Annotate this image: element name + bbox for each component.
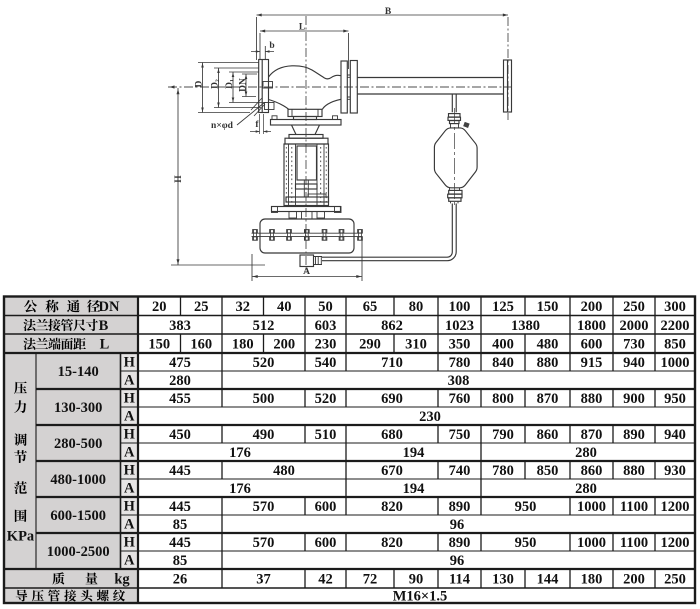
svg-text:150: 150: [537, 299, 559, 315]
svg-text:850: 850: [664, 337, 686, 353]
svg-text:950: 950: [515, 499, 537, 515]
svg-text:H: H: [124, 463, 136, 479]
svg-text:2000: 2000: [620, 318, 649, 334]
svg-text:n×φd: n×φd: [211, 121, 234, 131]
svg-text:A: A: [124, 445, 135, 461]
svg-text:A: A: [124, 373, 135, 389]
svg-text:1380: 1380: [511, 318, 540, 334]
svg-text:50: 50: [318, 299, 333, 315]
svg-text:862: 862: [381, 318, 403, 334]
svg-text:540: 540: [315, 355, 337, 371]
svg-text:15-140: 15-140: [58, 364, 99, 380]
svg-text:130-300: 130-300: [54, 400, 102, 416]
svg-text:100: 100: [449, 299, 471, 315]
svg-text:600: 600: [581, 337, 603, 353]
svg-text:850: 850: [537, 463, 559, 479]
svg-text:32: 32: [236, 299, 251, 315]
svg-text:65: 65: [363, 299, 378, 315]
svg-text:1200: 1200: [661, 499, 690, 515]
svg-text:500: 500: [253, 391, 275, 407]
svg-text:b: b: [269, 41, 274, 51]
svg-text:A: A: [124, 409, 135, 425]
svg-text:114: 114: [449, 572, 470, 588]
svg-text:A: A: [124, 517, 135, 533]
svg-text:280-500: 280-500: [54, 436, 102, 452]
svg-text:180: 180: [232, 337, 254, 353]
svg-text:455: 455: [169, 391, 191, 407]
svg-text:H: H: [174, 175, 184, 183]
svg-text:790: 790: [492, 427, 514, 443]
svg-text:950: 950: [664, 391, 686, 407]
svg-text:450: 450: [169, 427, 191, 443]
svg-text:H: H: [124, 391, 136, 407]
svg-text:144: 144: [537, 572, 559, 588]
svg-text:130: 130: [492, 572, 514, 588]
svg-text:445: 445: [169, 535, 191, 551]
svg-text:160: 160: [190, 337, 212, 353]
svg-text:280: 280: [575, 481, 597, 497]
svg-text:20: 20: [152, 299, 167, 315]
svg-text:870: 870: [581, 427, 603, 443]
svg-text:710: 710: [381, 355, 403, 371]
svg-text:85: 85: [173, 517, 188, 533]
svg-text:200: 200: [273, 337, 295, 353]
svg-text:1100: 1100: [620, 499, 648, 515]
svg-text:350: 350: [449, 337, 471, 353]
svg-text:kg: kg: [114, 572, 130, 588]
svg-text:230: 230: [315, 337, 337, 353]
svg-text:M16×1.5: M16×1.5: [393, 589, 448, 605]
svg-text:730: 730: [623, 337, 645, 353]
svg-text:680: 680: [381, 427, 403, 443]
svg-text:940: 940: [623, 355, 645, 371]
svg-text:445: 445: [169, 499, 191, 515]
svg-text:890: 890: [623, 427, 645, 443]
svg-text:37: 37: [256, 572, 271, 588]
svg-text:780: 780: [492, 463, 514, 479]
svg-text:740: 740: [449, 463, 471, 479]
svg-text:930: 930: [664, 463, 686, 479]
svg-text:880: 880: [537, 355, 559, 371]
svg-text:570: 570: [253, 535, 275, 551]
svg-text:DN: DN: [99, 299, 120, 315]
svg-text:1000: 1000: [661, 355, 690, 371]
svg-text:670: 670: [381, 463, 403, 479]
svg-text:80: 80: [409, 299, 424, 315]
svg-text:800: 800: [492, 391, 514, 407]
svg-text:A: A: [303, 267, 310, 277]
svg-text:290: 290: [359, 337, 381, 353]
svg-text:750: 750: [449, 427, 471, 443]
svg-text:1100: 1100: [620, 535, 648, 551]
svg-text:L: L: [100, 337, 110, 353]
svg-text:150: 150: [148, 337, 170, 353]
svg-text:90: 90: [409, 572, 424, 588]
svg-text:475: 475: [169, 355, 191, 371]
svg-text:25: 25: [194, 299, 209, 315]
svg-text:200: 200: [623, 572, 645, 588]
svg-text:H: H: [124, 499, 136, 515]
svg-text:880: 880: [623, 463, 645, 479]
svg-text:72: 72: [363, 572, 378, 588]
svg-text:A: A: [124, 481, 135, 497]
svg-text:B: B: [99, 318, 109, 334]
svg-text:890: 890: [449, 535, 471, 551]
svg-text:200: 200: [581, 299, 603, 315]
svg-text:H: H: [124, 535, 136, 551]
svg-text:900: 900: [623, 391, 645, 407]
svg-text:194: 194: [403, 445, 425, 461]
svg-text:600: 600: [315, 499, 337, 515]
svg-text:600: 600: [315, 535, 337, 551]
svg-text:603: 603: [315, 318, 337, 334]
svg-text:125: 125: [492, 299, 514, 315]
svg-text:383: 383: [169, 318, 191, 334]
svg-text:250: 250: [623, 299, 645, 315]
svg-text:950: 950: [515, 535, 537, 551]
svg-text:180: 180: [581, 572, 603, 588]
svg-text:840: 840: [492, 355, 514, 371]
svg-text:510: 510: [315, 427, 337, 443]
svg-text:230: 230: [419, 409, 441, 425]
svg-text:760: 760: [449, 391, 471, 407]
svg-text:520: 520: [315, 391, 337, 407]
svg-text:194: 194: [403, 481, 425, 497]
svg-text:1800: 1800: [577, 318, 606, 334]
svg-text:860: 860: [581, 463, 603, 479]
svg-text:890: 890: [449, 499, 471, 515]
svg-text:310: 310: [405, 337, 427, 353]
svg-text:96: 96: [450, 553, 465, 569]
svg-text:H: H: [124, 355, 136, 371]
svg-text:1000: 1000: [577, 499, 606, 515]
svg-text:600-1500: 600-1500: [50, 508, 106, 524]
svg-text:H: H: [124, 427, 136, 443]
svg-text:820: 820: [381, 535, 403, 551]
svg-text:96: 96: [450, 517, 465, 533]
svg-text:42: 42: [318, 572, 333, 588]
svg-text:300: 300: [664, 299, 686, 315]
svg-text:860: 860: [537, 427, 559, 443]
svg-text:176: 176: [229, 481, 251, 497]
svg-text:A: A: [124, 553, 135, 569]
svg-text:1023: 1023: [445, 318, 474, 334]
svg-text:176: 176: [229, 445, 251, 461]
svg-text:940: 940: [664, 427, 686, 443]
svg-text:880: 880: [581, 391, 603, 407]
svg-text:820: 820: [381, 499, 403, 515]
svg-text:512: 512: [253, 318, 275, 334]
svg-text:480-1000: 480-1000: [50, 472, 106, 488]
svg-text:915: 915: [581, 355, 603, 371]
svg-text:480: 480: [537, 337, 559, 353]
svg-text:250: 250: [664, 572, 686, 588]
svg-text:1000: 1000: [577, 535, 606, 551]
svg-text:490: 490: [253, 427, 275, 443]
svg-text:280: 280: [169, 373, 191, 389]
svg-text:1000-2500: 1000-2500: [47, 544, 110, 560]
svg-text:400: 400: [492, 337, 514, 353]
svg-text:26: 26: [173, 572, 188, 588]
svg-text:KPa: KPa: [7, 529, 35, 545]
svg-text:DN: DN: [239, 78, 249, 92]
svg-text:780: 780: [449, 355, 471, 371]
svg-text:40: 40: [277, 299, 292, 315]
svg-text:308: 308: [448, 373, 470, 389]
svg-text:85: 85: [173, 553, 188, 569]
svg-text:870: 870: [537, 391, 559, 407]
svg-text:L: L: [299, 23, 305, 33]
svg-text:690: 690: [381, 391, 403, 407]
svg-text:480: 480: [273, 463, 295, 479]
svg-text:445: 445: [169, 463, 191, 479]
svg-text:570: 570: [253, 499, 275, 515]
svg-text:280: 280: [575, 445, 597, 461]
svg-text:2200: 2200: [661, 318, 690, 334]
svg-text:520: 520: [253, 355, 275, 371]
svg-text:1200: 1200: [661, 535, 690, 551]
svg-text:D: D: [195, 80, 205, 87]
svg-text:B: B: [385, 7, 392, 17]
